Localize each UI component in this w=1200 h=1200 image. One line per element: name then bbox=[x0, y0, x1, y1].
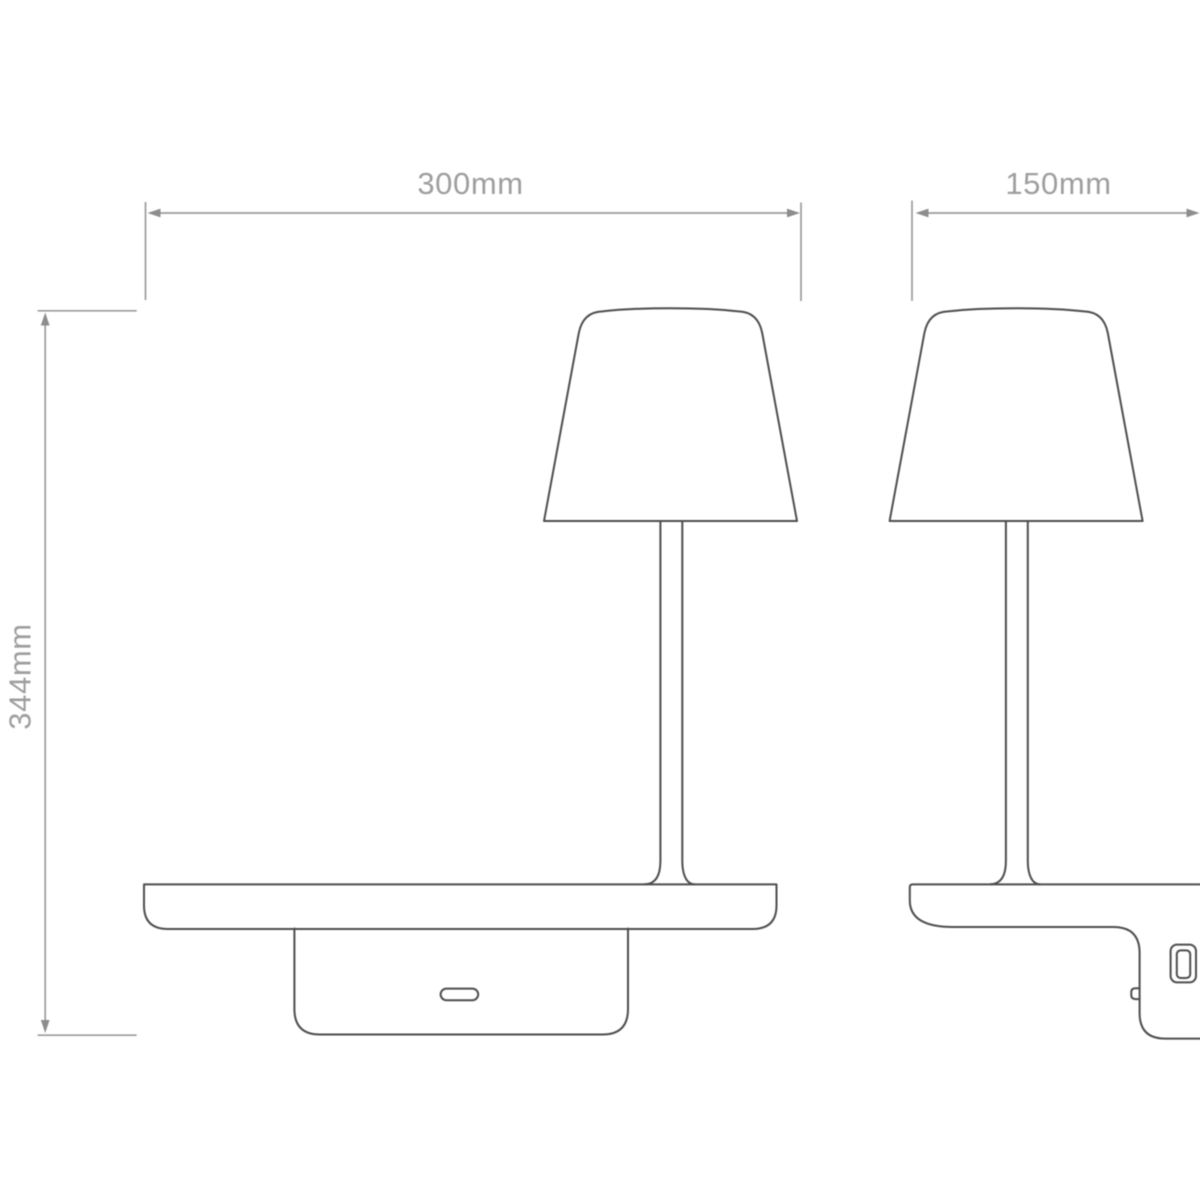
svg-text:300mm: 300mm bbox=[417, 166, 523, 201]
svg-text:344mm: 344mm bbox=[3, 623, 38, 729]
svg-text:150mm: 150mm bbox=[1005, 166, 1111, 201]
